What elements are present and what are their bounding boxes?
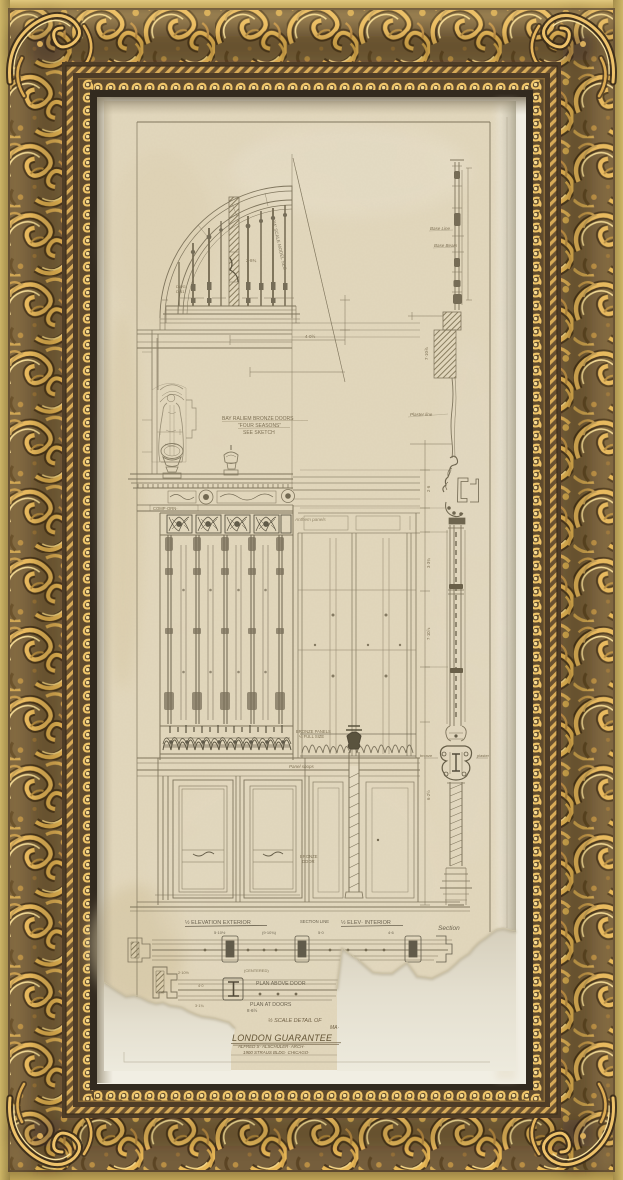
svg-text:D 41: D 41: [176, 289, 185, 294]
svg-text:7·10⅞: 7·10⅞: [424, 347, 429, 360]
svg-text:Plaster line: Plaster line: [410, 412, 433, 417]
svg-text:½ SCALE DETAIL OF: ½ SCALE DETAIL OF: [268, 1017, 322, 1024]
svg-text:3·1¾: 3·1¾: [195, 1004, 204, 1008]
svg-text:MA·: MA·: [330, 1025, 340, 1031]
svg-text:2·6: 2·6: [426, 485, 431, 492]
svg-text:bronze: bronze: [420, 753, 433, 758]
svg-text:LONDON GUARANTEE: LONDON GUARANTEE: [232, 1033, 333, 1043]
svg-text:(9·10¾): (9·10¾): [262, 930, 277, 935]
svg-text:(CENTERED): (CENTERED): [244, 968, 269, 973]
svg-text:½ ELEVATION EXTERIOR: ½ ELEVATION EXTERIOR: [185, 919, 251, 926]
svg-text:2·10½: 2·10½: [178, 971, 190, 975]
svg-text:5·10½: 5·10½: [214, 930, 226, 935]
svg-text:SECTION LINE: SECTION LINE: [300, 919, 329, 924]
svg-text:4·0: 4·0: [198, 984, 204, 988]
svg-text:Section: Section: [438, 925, 460, 932]
svg-text:Anthem panels: Anthem panels: [294, 517, 326, 522]
svg-text:plaster: plaster: [477, 753, 490, 758]
svg-text:4·0½: 4·0½: [305, 333, 316, 339]
svg-text:COMP·ORN·: COMP·ORN·: [153, 506, 178, 511]
svg-text:ALFRED S· ALSCHULER· ARCH·: ALFRED S· ALSCHULER· ARCH·: [237, 1044, 305, 1049]
svg-text:8·6½: 8·6½: [247, 1007, 258, 1013]
svg-text:4·6: 4·6: [388, 930, 395, 935]
svg-text:1900 STRAUS BLDG· CHICAGO·: 1900 STRAUS BLDG· CHICAGO·: [243, 1050, 310, 1055]
svg-text:7·10⅞: 7·10⅞: [426, 627, 431, 640]
svg-text:3·3¾: 3·3¾: [426, 558, 431, 568]
svg-text:6·2½: 6·2½: [426, 790, 431, 800]
svg-text:½ ELEV· INTERIOR: ½ ELEV· INTERIOR: [341, 919, 391, 926]
svg-text:SEE SKETCH: SEE SKETCH: [243, 430, 275, 436]
svg-text:¼ FULL SIZE: ¼ FULL SIZE: [299, 734, 324, 739]
svg-text:Panel shops: Panel shops: [289, 764, 315, 769]
svg-text:5·0: 5·0: [318, 930, 325, 935]
svg-text:2·8¾: 2·8¾: [246, 258, 257, 263]
svg-text:DOOR: DOOR: [302, 859, 315, 864]
